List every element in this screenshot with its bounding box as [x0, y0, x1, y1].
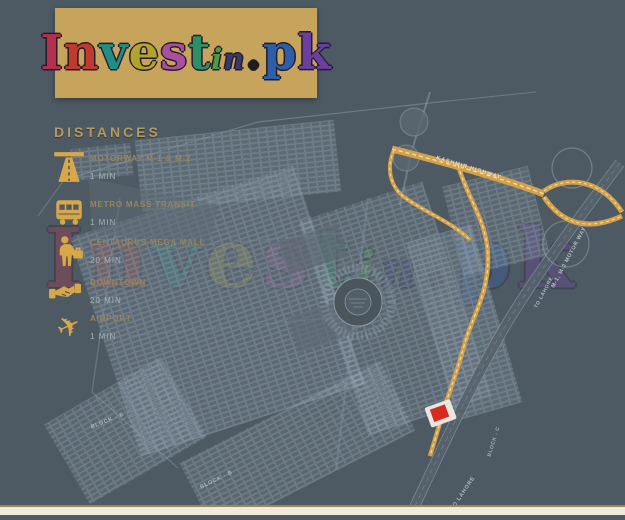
distances-panel: DISTANCES MOTORWAY M-1 & M-2 1 MIN METR [52, 120, 282, 520]
distance-item-airport: ✈ AIRPORT 1 MIN [52, 310, 282, 354]
block-c-label: BLOCK - C [487, 426, 502, 458]
distance-value: 20 MIN [90, 256, 122, 265]
handshake-icon [48, 274, 82, 308]
central-roundabout [324, 268, 392, 336]
distance-label: MOTORWAY M-1 & M-2 [90, 154, 191, 163]
distance-item-motorway: MOTORWAY M-1 & M-2 1 MIN [52, 150, 282, 194]
distance-label: METRO MASS TRANSIT [90, 200, 196, 209]
distance-label: DOWNTOWN [90, 278, 146, 287]
distance-item-mall: CENTAURUS MEGA MALL 20 MIN [52, 234, 282, 278]
kashmir-highway-label: KASHMIR HIGHWAY [435, 155, 502, 181]
motorway-icon [52, 150, 86, 184]
traveler-icon [52, 234, 86, 268]
distance-label: AIRPORT [90, 314, 132, 323]
distance-value: 1 MIN [90, 172, 116, 181]
distance-label: CENTAURUS MEGA MALL [90, 238, 205, 247]
distance-value: 1 MIN [90, 332, 116, 341]
airplane-icon: ✈ [52, 310, 86, 344]
distance-value: 1 MIN [90, 218, 116, 227]
bus-icon [52, 196, 86, 230]
distance-value: 20 MIN [90, 296, 122, 305]
bottom-border-strip [0, 505, 625, 515]
distances-title: DISTANCES [54, 124, 161, 140]
top-interchange-loop-1 [400, 108, 428, 136]
